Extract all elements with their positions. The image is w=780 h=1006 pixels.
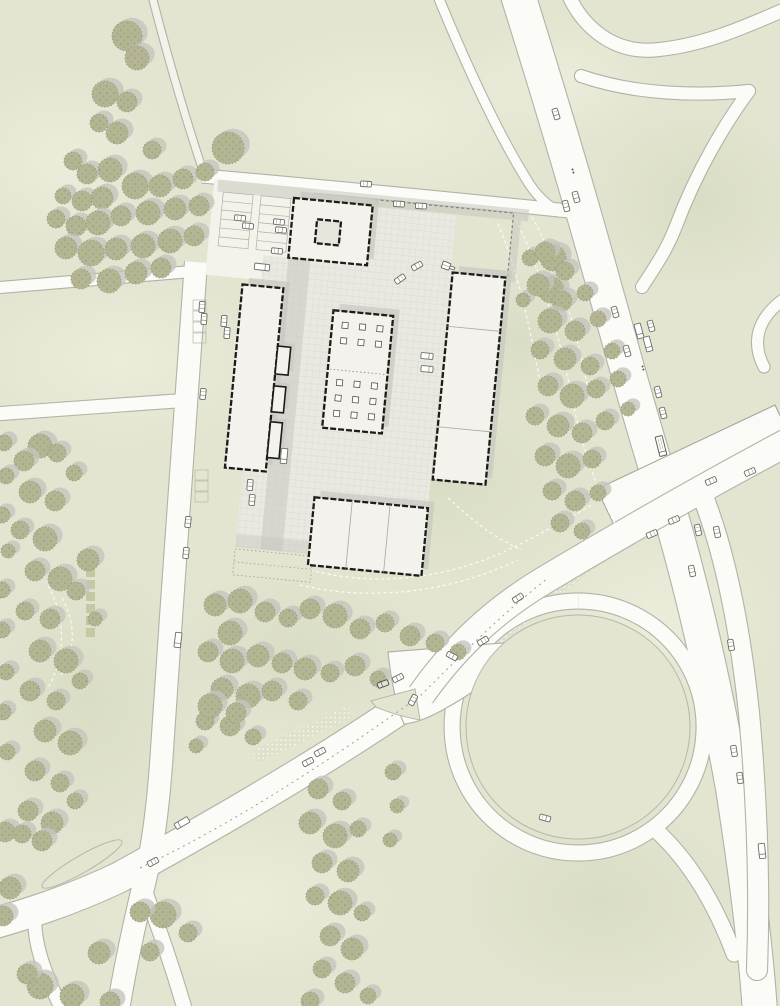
tree-canopy-texture xyxy=(190,740,203,753)
site-plan-page xyxy=(0,0,780,1006)
tree-canopy-texture xyxy=(300,813,320,833)
tree-canopy-texture xyxy=(98,270,120,292)
pavilion-column xyxy=(335,395,342,402)
tree-canopy-texture xyxy=(342,939,362,959)
vehicle-car xyxy=(234,215,246,222)
tree-canopy-texture xyxy=(322,665,339,682)
tree-canopy-texture xyxy=(99,159,121,181)
tree-canopy-texture xyxy=(355,906,370,921)
tree-canopy-texture xyxy=(12,522,29,539)
vehicle-truck xyxy=(254,263,270,271)
tree-canopy-texture xyxy=(324,605,346,627)
tree-canopy-texture xyxy=(575,524,590,539)
vehicle-car xyxy=(183,547,190,559)
tree-canopy-texture xyxy=(93,82,117,106)
tree-canopy-texture xyxy=(528,275,548,295)
tree-canopy-texture xyxy=(174,170,192,188)
vehicle-car xyxy=(730,745,737,757)
tree-canopy-texture xyxy=(68,794,83,809)
tree-canopy-texture xyxy=(384,834,397,847)
pavilion-column xyxy=(333,410,340,417)
pavilion-column xyxy=(342,322,349,329)
tree-canopy-texture xyxy=(536,447,554,465)
tree-canopy-texture xyxy=(72,270,90,288)
vehicle-car xyxy=(736,772,743,784)
tree-canopy-texture xyxy=(321,927,339,945)
tree-canopy-texture xyxy=(377,615,394,632)
tree-canopy-texture xyxy=(329,892,351,914)
pavilion-column xyxy=(340,338,347,345)
pavilion-column xyxy=(368,414,375,421)
tree-canopy-texture xyxy=(334,793,351,810)
tree-canopy-texture xyxy=(346,657,364,675)
tree-canopy-texture xyxy=(106,239,126,259)
tree-canopy-texture xyxy=(591,486,606,501)
tree-canopy-texture xyxy=(126,47,148,69)
tree-canopy-texture xyxy=(588,381,605,398)
tree-canopy-texture xyxy=(246,730,261,745)
tree-canopy-texture xyxy=(324,825,346,847)
tree-canopy-texture xyxy=(185,227,203,245)
tree-canopy-texture xyxy=(73,192,91,210)
pavilion-column xyxy=(370,398,377,405)
tree-canopy-texture xyxy=(552,515,569,532)
vehicle-truck xyxy=(758,843,766,859)
tree-canopy-texture xyxy=(578,286,593,301)
pavilion-column xyxy=(351,412,358,419)
tree-canopy-texture xyxy=(180,925,197,942)
tree-canopy-texture xyxy=(132,235,154,257)
tree-canopy-texture xyxy=(219,622,241,644)
vehicle-car xyxy=(199,301,205,312)
tree-canopy-texture xyxy=(131,903,149,921)
tree-canopy-texture xyxy=(273,654,291,672)
tree-canopy-texture xyxy=(92,188,112,208)
west-slab-annex xyxy=(267,422,282,459)
vehicle-car xyxy=(415,203,426,209)
tree-canopy-texture xyxy=(544,483,561,500)
tree-canopy-texture xyxy=(517,294,530,307)
west-slab-annex xyxy=(275,346,291,375)
tree-canopy-texture xyxy=(112,207,130,225)
tree-canopy-texture xyxy=(199,695,221,717)
tree-canopy-texture xyxy=(59,732,81,754)
tree-canopy-texture xyxy=(67,466,82,481)
tree-canopy-texture xyxy=(49,445,66,462)
tree-canopy-texture xyxy=(555,349,575,369)
tree-canopy-texture xyxy=(597,413,614,430)
tree-canopy-texture xyxy=(295,659,315,679)
tree-canopy-texture xyxy=(314,961,331,978)
west-slab-annex xyxy=(271,386,285,413)
south-building xyxy=(308,497,428,576)
tree-canopy-texture xyxy=(229,590,251,612)
tree-canopy-texture xyxy=(213,133,242,162)
vehicle-truck xyxy=(280,448,288,464)
tree-canopy-texture xyxy=(199,643,217,661)
tree-canopy-texture xyxy=(67,217,85,235)
vehicle-car xyxy=(200,388,207,400)
tree-canopy-texture xyxy=(19,802,37,820)
tree-canopy-texture xyxy=(539,377,557,395)
tree-canopy-texture xyxy=(566,322,584,340)
tree-canopy-texture xyxy=(566,492,584,510)
tree-canopy-texture xyxy=(0,745,14,760)
tree-canopy-texture xyxy=(205,595,225,615)
tree-canopy-texture xyxy=(123,174,147,198)
vehicle-car xyxy=(221,315,227,326)
tree-canopy-texture xyxy=(361,989,376,1004)
tree-canopy-texture xyxy=(107,123,127,143)
loop-island xyxy=(466,615,690,839)
tree-canopy-texture xyxy=(49,568,71,590)
tree-canopy-texture xyxy=(548,416,568,436)
tree-canopy-texture xyxy=(21,682,39,700)
tree-canopy-texture xyxy=(142,944,159,961)
vehicle-car xyxy=(224,327,230,338)
vehicle-car xyxy=(360,181,371,187)
tree-canopy-texture xyxy=(20,482,40,502)
vehicle-van xyxy=(421,352,433,359)
pavilion-column xyxy=(358,339,365,346)
pavilion-column xyxy=(359,324,366,331)
pavilion-column xyxy=(371,383,378,390)
tree-canopy-texture xyxy=(35,721,55,741)
vehicle-truck xyxy=(174,632,182,648)
tree-canopy-texture xyxy=(280,610,297,627)
tree-canopy-texture xyxy=(622,403,635,416)
north-courtyard-void xyxy=(315,219,341,245)
tree-canopy-texture xyxy=(56,189,71,204)
hedge-square xyxy=(86,628,95,637)
tree-canopy-texture xyxy=(351,620,369,638)
tree-canopy-texture xyxy=(527,408,544,425)
tree-canopy-texture xyxy=(561,385,583,407)
tree-canopy-texture xyxy=(26,762,44,780)
tree-canopy-texture xyxy=(539,310,561,332)
pavilion-column xyxy=(354,381,361,388)
pavilion-column xyxy=(375,341,382,348)
vehicle-car xyxy=(201,313,207,324)
tree-canopy-texture xyxy=(557,263,574,280)
pavilion-column xyxy=(336,379,343,386)
tree-canopy-texture xyxy=(190,197,208,215)
hedge-square xyxy=(86,604,95,613)
tree-canopy-texture xyxy=(427,635,444,652)
tree-canopy-texture xyxy=(61,985,83,1006)
tree-canopy-texture xyxy=(351,822,366,837)
tree-canopy-texture xyxy=(301,600,319,618)
tree-canopy-texture xyxy=(144,142,161,159)
tree-canopy-texture xyxy=(73,674,88,689)
tree-canopy-texture xyxy=(150,176,170,196)
vehicle-car xyxy=(185,516,192,528)
tree-canopy-texture xyxy=(336,974,354,992)
vehicle-car xyxy=(393,201,404,207)
tree-canopy-texture xyxy=(338,861,358,881)
tree-canopy-texture xyxy=(221,650,243,672)
pavilion-column xyxy=(377,325,384,332)
tree-canopy-texture xyxy=(89,613,102,626)
tree-canopy-texture xyxy=(79,241,103,265)
tree-canopy-texture xyxy=(30,641,50,661)
tree-canopy-texture xyxy=(14,826,31,843)
tree-canopy-texture xyxy=(573,424,591,442)
tree-canopy-texture xyxy=(26,562,44,580)
tree-canopy-texture xyxy=(605,344,620,359)
tree-canopy-texture xyxy=(227,704,245,722)
tree-canopy-texture xyxy=(56,238,76,258)
tree-canopy-texture xyxy=(309,780,327,798)
vehicle-car xyxy=(275,227,287,234)
vehicle-car xyxy=(273,219,285,226)
vehicle-van xyxy=(421,365,433,372)
tree-canopy-texture xyxy=(0,878,20,898)
vehicle-car xyxy=(249,494,256,505)
tree-canopy-texture xyxy=(591,312,606,327)
tree-canopy-texture xyxy=(48,693,65,710)
tree-canopy-texture xyxy=(65,153,82,170)
tree-canopy-texture xyxy=(611,372,626,387)
tree-canopy-texture xyxy=(52,775,69,792)
tree-canopy-texture xyxy=(532,342,549,359)
tree-canopy-texture xyxy=(391,800,404,813)
tree-canopy-texture xyxy=(256,603,274,621)
tree-canopy-texture xyxy=(89,943,109,963)
pavilion-column xyxy=(352,396,359,403)
vehicle-car xyxy=(242,223,254,230)
tree-canopy-texture xyxy=(401,627,419,645)
tree-canopy-texture xyxy=(584,451,601,468)
tree-canopy-texture xyxy=(68,583,85,600)
tree-canopy-texture xyxy=(197,164,214,181)
tree-canopy-texture xyxy=(87,212,109,234)
tree-canopy-texture xyxy=(55,650,77,672)
tree-canopy-texture xyxy=(263,682,281,700)
tree-canopy-texture xyxy=(41,610,59,628)
tree-canopy-texture xyxy=(78,550,98,570)
tree-canopy-texture xyxy=(126,263,146,283)
tree-canopy-texture xyxy=(159,230,181,252)
tree-canopy-texture xyxy=(46,492,64,510)
tree-canopy-texture xyxy=(152,259,170,277)
tree-canopy-texture xyxy=(307,888,324,905)
tree-canopy-texture xyxy=(118,93,136,111)
tree-canopy-texture xyxy=(290,693,307,710)
tree-canopy-texture xyxy=(536,243,554,261)
tree-canopy-texture xyxy=(33,832,51,850)
tree-canopy-texture xyxy=(165,199,185,219)
tree-canopy-texture xyxy=(386,765,401,780)
site-plan-drawing xyxy=(0,0,780,1006)
tree-canopy-texture xyxy=(2,545,15,558)
tree-canopy-texture xyxy=(78,165,96,183)
tree-canopy-texture xyxy=(557,455,579,477)
tree-canopy-texture xyxy=(313,854,331,872)
vehicle-car xyxy=(247,479,254,490)
tree-canopy-texture xyxy=(34,528,56,550)
tree-canopy-texture xyxy=(582,358,599,375)
hedge-square xyxy=(86,592,95,601)
tree-canopy-texture xyxy=(17,603,34,620)
vehicle-car xyxy=(271,248,283,255)
tree-canopy-texture xyxy=(91,115,108,132)
tree-canopy-texture xyxy=(48,211,65,228)
tree-canopy-texture xyxy=(248,646,268,666)
tree-canopy-texture xyxy=(137,202,159,224)
tree-canopy-texture xyxy=(18,965,36,983)
